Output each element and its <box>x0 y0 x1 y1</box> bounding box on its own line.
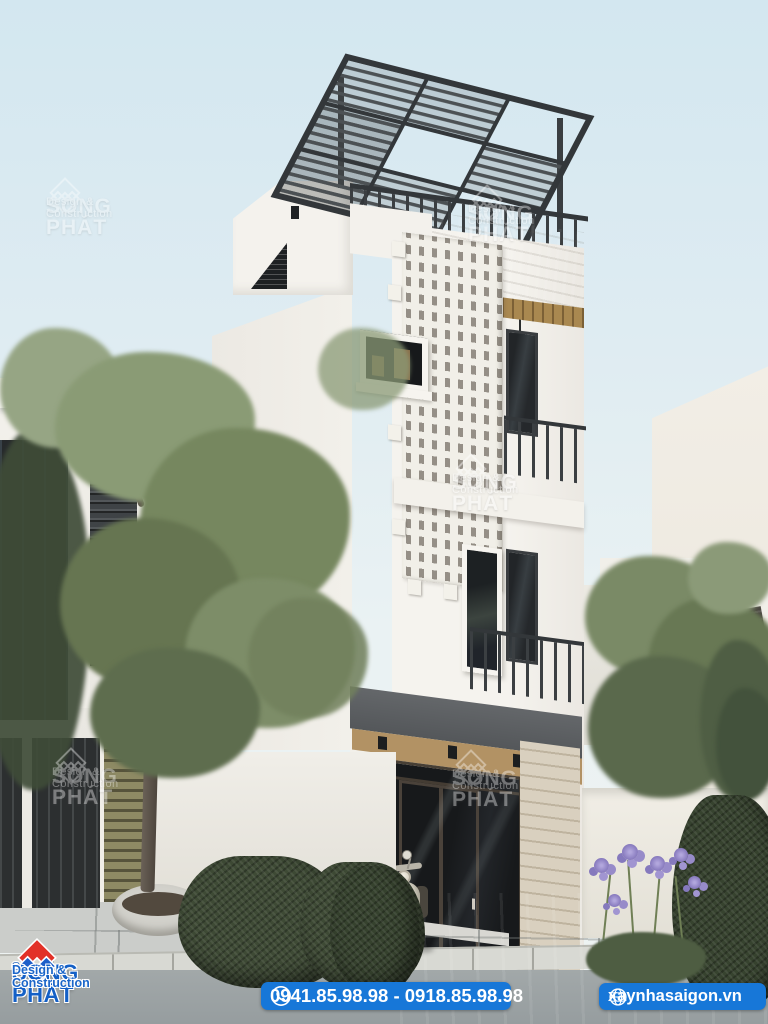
shrub <box>716 688 768 800</box>
breeze-block <box>444 584 457 601</box>
tree-foliage <box>318 328 410 410</box>
front-hedge <box>330 866 420 992</box>
flower-stem <box>675 876 684 942</box>
downlight-icon <box>448 745 457 759</box>
breeze-block <box>392 241 405 258</box>
breeze-block <box>392 519 405 536</box>
website-url: xaynhasaigon.vn <box>608 987 742 1006</box>
architectural-render: SONG PHÁT Design & Construction SONG PHÁ… <box>0 0 768 1024</box>
phone-numbers: 0941.85.98.98 - 0918.85.98.98 <box>270 985 523 1007</box>
watermark-brand: SONG PHÁT <box>46 196 112 238</box>
breeze-block <box>408 579 421 596</box>
downlight-icon <box>378 736 387 750</box>
breeze-block <box>388 284 401 301</box>
agapanthus-flower <box>608 894 621 907</box>
phone-contact-pill[interactable]: 0941.85.98.98 - 0918.85.98.98 <box>261 982 511 1010</box>
agapanthus-flower <box>650 856 665 871</box>
flower-leaves <box>586 932 706 986</box>
song-phat-diamond-watermark-icon <box>46 177 84 215</box>
agapanthus-flower <box>594 858 609 873</box>
tree-foliage <box>688 542 768 614</box>
logo-tagline: Design & Construction <box>12 964 90 989</box>
breeze-block <box>388 424 401 441</box>
third-floor-balcony-railing <box>504 416 586 485</box>
scooter-mirror <box>402 850 412 860</box>
agapanthus-flower <box>674 848 688 862</box>
agapanthus-flower <box>688 876 701 889</box>
watermark-tagline: Design & Construction <box>46 196 113 220</box>
website-pill[interactable]: xaynhasaigon.vn <box>599 983 766 1010</box>
tree-foliage <box>248 598 368 718</box>
tree-foliage <box>90 648 260 778</box>
agapanthus-flower <box>622 844 638 860</box>
agapanthus-cluster <box>578 836 712 986</box>
